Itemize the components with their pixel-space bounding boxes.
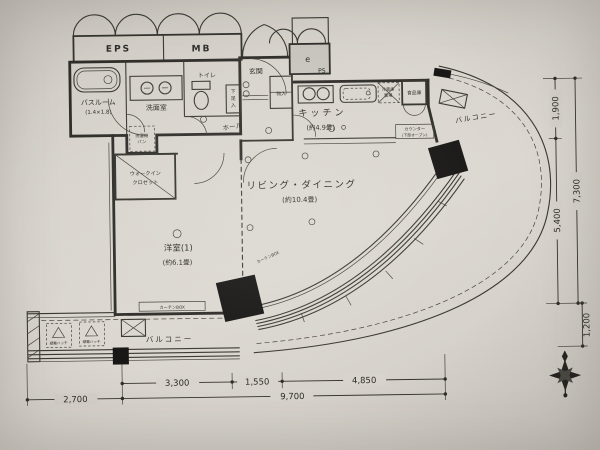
dim-5400: 5,400: [553, 208, 563, 232]
elec-label: e: [305, 55, 310, 64]
counter-label2: (下部オープン): [402, 132, 428, 137]
door-arc: [194, 153, 224, 183]
entrance-label: 玄関: [249, 67, 263, 76]
hatch-label: 避難ハッチ: [83, 339, 101, 344]
dim-1900: 1,900: [551, 96, 561, 120]
storage-label: 物入: [276, 90, 286, 97]
north-compass-icon: [549, 350, 582, 397]
pillar: [428, 140, 469, 180]
toilet-bowl: [194, 91, 208, 109]
living-dining-label: リビング・ダイニング: [246, 178, 356, 192]
bathroom-block: バスルーム (1.4×1.8) 洗面室 洗濯機 パン トイレ: [70, 60, 241, 154]
bathtub: [74, 68, 120, 93]
floor-plan-photo: EPS MB バスルーム (1.4×1.8) 洗面室 洗濯機 パン: [0, 0, 600, 450]
western-room-area: ウォークイン クロゼット 洋室(1) (約6.1畳) カーテンBOX: [109, 134, 226, 315]
dim-1200: 1,200: [582, 313, 592, 337]
hatch-label: 避難ハッチ: [50, 340, 68, 345]
sink: [340, 85, 376, 103]
door-arc: [126, 114, 144, 132]
dim-9700: 9,700: [280, 392, 304, 402]
shoe-char: 足: [231, 96, 236, 102]
pantry: 食品庫: [402, 80, 426, 115]
dimension-lines-right: 1,900 5,400 7,300 1,200: [543, 76, 593, 348]
fridge-label2: 置場: [384, 92, 393, 99]
kitchen-label: キッチン: [298, 107, 346, 119]
mb-label: MB: [192, 44, 212, 54]
toilet-label: トイレ: [198, 72, 216, 79]
dim-1550: 1,550: [245, 377, 269, 387]
entrance-area: 下 足 入 玄関 物入 ホール: [221, 24, 293, 141]
escape-hatch: 避難ハッチ: [46, 323, 71, 347]
washer-label2: パン: [137, 139, 146, 145]
shoe-char: 入: [231, 103, 236, 109]
western-room-label: 洋室(1): [164, 242, 193, 253]
bathroom-size: (1.4×1.8): [85, 110, 111, 116]
wic-label2: クロゼット: [132, 178, 158, 186]
toilet-tank: [192, 81, 210, 89]
dim-2700: 2,700: [63, 395, 87, 405]
washer-label1: 洗濯機: [135, 132, 149, 139]
hatch-box: [121, 319, 145, 336]
shoe-char: 下: [231, 89, 236, 95]
western-room-size: (約6.1畳): [163, 258, 193, 267]
eps-mb-shaft: EPS MB: [73, 13, 242, 62]
bathroom-label: バスルーム: [81, 99, 116, 107]
door-arc: [243, 148, 277, 182]
balcony-bottom-area: 避難ハッチ 避難ハッチ バルコニー: [27, 309, 240, 366]
kitchen-area: 冷蔵庫 置場 食品庫 キッチン (約4.9畳) カウンター (下部オープン): [293, 80, 437, 144]
pillar-small: [113, 347, 129, 364]
curved-balcony: バルコニー: [213, 65, 553, 354]
kitchen-size: (約4.9畳): [306, 123, 335, 132]
ps-shaft: e PS: [269, 18, 330, 76]
dim-7300: 7,300: [572, 179, 582, 203]
dimension-lines-bottom: 3,300 1,550 4,850 2,700 9,700: [25, 354, 447, 406]
balcony-right-label: バルコニー: [455, 110, 498, 125]
ps-label: PS: [318, 68, 326, 75]
washroom-label: 洗面室: [146, 103, 167, 112]
escape-hatch: 避難ハッチ: [79, 322, 104, 346]
pantry-label: 食品庫: [407, 89, 422, 96]
hatch-box: [439, 89, 467, 108]
door-arc: [186, 116, 206, 134]
living-dining-size: (約10.4畳): [282, 195, 317, 204]
pillar: [216, 275, 265, 323]
floor-plan-drawing: EPS MB バスルーム (1.4×1.8) 洗面室 洗濯機 パン: [0, 0, 600, 450]
fridge-space: 冷蔵庫 置場: [378, 83, 399, 103]
dim-4850: 4,850: [352, 376, 376, 386]
wall-cap: [433, 68, 451, 79]
vanity-counter: [130, 76, 182, 101]
faucet-icon: [104, 76, 112, 84]
wic-label1: ウォークイン: [130, 169, 161, 177]
curtain-box-living-label: カーテンBOX: [255, 249, 280, 265]
balcony-bottom-label: バルコニー: [146, 335, 193, 345]
eps-label: EPS: [106, 44, 131, 54]
dim-3300: 3,300: [165, 379, 189, 389]
curtain-box-label: カーテンBOX: [159, 305, 185, 311]
